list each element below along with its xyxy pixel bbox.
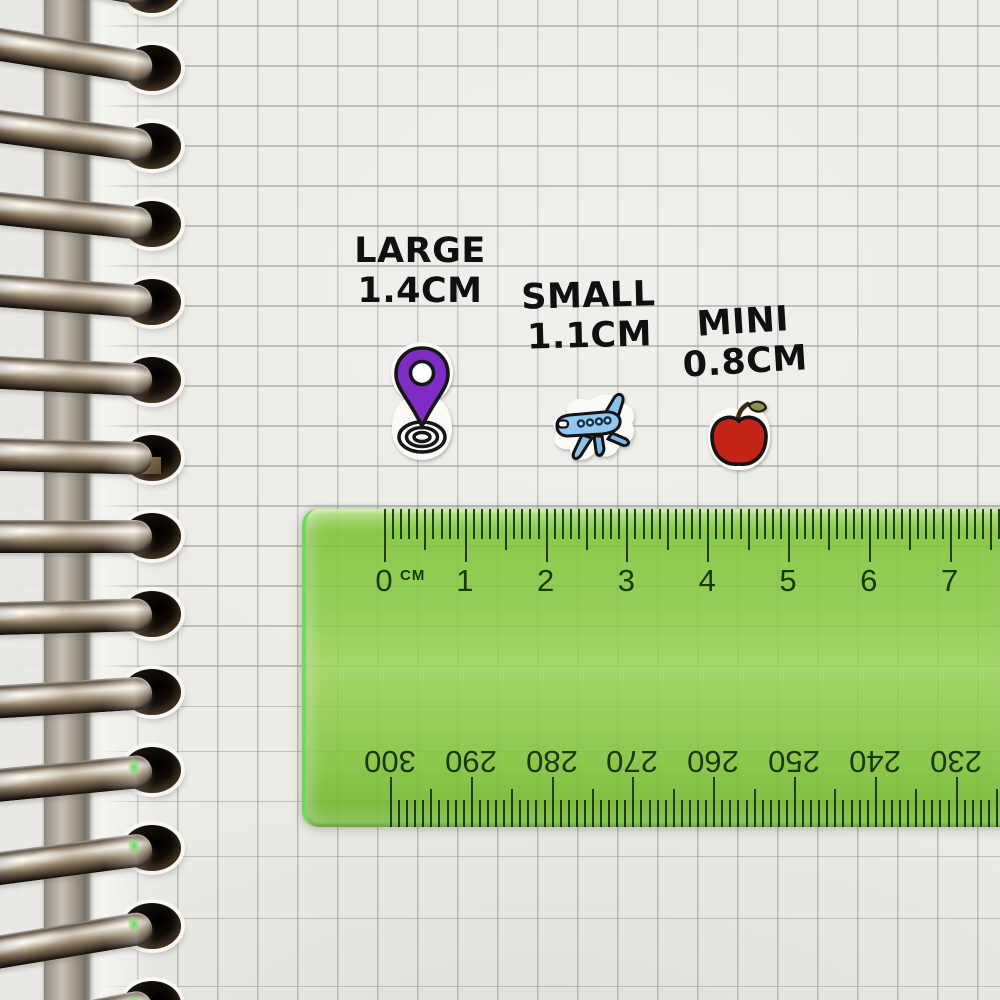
pin-center-dot <box>411 362 434 385</box>
ruler-tick <box>392 509 394 539</box>
ruler-tick <box>503 800 505 827</box>
ruler-tick <box>570 509 572 539</box>
ruler-tick <box>632 777 634 827</box>
ruler-tick <box>521 509 523 539</box>
ruler-tick <box>414 800 416 827</box>
ruler-cm-number: 0 <box>375 565 392 596</box>
ruler-tick <box>535 800 537 827</box>
ruler-tick <box>667 509 669 550</box>
green-reflection <box>127 916 140 933</box>
ruler-tick <box>675 509 677 539</box>
ruler-tick <box>544 800 546 827</box>
apple-sticker <box>705 396 773 474</box>
ruler-tick <box>408 509 410 539</box>
ruler-tick <box>729 800 731 827</box>
ruler-tick <box>457 509 459 539</box>
ruler-tick <box>592 789 594 827</box>
ruler-tick <box>948 800 950 827</box>
ruler-tick <box>511 789 513 827</box>
ruler-tick <box>578 509 580 539</box>
ruler-tick <box>828 509 830 550</box>
ruler-tick <box>683 509 685 539</box>
ruler-tick <box>513 509 515 539</box>
ruler-tick <box>505 509 507 550</box>
ruler-tick <box>942 509 944 539</box>
ruler-tick <box>424 509 426 550</box>
ruler-tick <box>586 509 588 550</box>
ruler-tick <box>527 800 529 827</box>
ruler-tick <box>519 800 521 827</box>
ruler-tick <box>616 800 618 827</box>
ruler-tick <box>673 789 675 827</box>
ruler-tick <box>859 800 861 827</box>
ruler-tick <box>845 509 847 539</box>
ruler-tick <box>390 777 392 827</box>
ruler-cm-number: 5 <box>779 565 796 596</box>
ruler-tick <box>907 800 909 827</box>
ruler-mm-number: 270 <box>607 746 659 777</box>
ruler-tick <box>465 509 467 562</box>
ruler-tick <box>875 777 877 827</box>
ruler-tick <box>869 509 871 562</box>
ruler-tick <box>398 800 400 827</box>
ruler-tick <box>562 509 564 539</box>
size-label-mini-title: MINI <box>696 299 790 345</box>
ruler-tick <box>449 509 451 539</box>
ruler-mm-number: 250 <box>768 746 820 777</box>
ruler-tick <box>851 800 853 827</box>
ruler-tick <box>438 800 440 827</box>
ruler-tick <box>643 509 645 539</box>
ruler-tick <box>737 800 739 827</box>
ruler-tick <box>416 509 418 539</box>
size-label-large-title: LARGE <box>354 231 485 271</box>
ruler-tick <box>899 800 901 827</box>
ruler-tick <box>893 509 895 539</box>
ruler-tick <box>489 509 491 539</box>
ruler-tick <box>931 800 933 827</box>
ruler-tick <box>812 509 814 539</box>
ruler-tick <box>441 509 443 539</box>
ruler-tick <box>691 509 693 539</box>
ruler-tick <box>473 509 475 539</box>
ruler-tick <box>786 800 788 827</box>
ruler-tick <box>788 509 790 562</box>
ruler-tick <box>964 800 966 827</box>
ruler-tick <box>624 800 626 827</box>
ruler-tick <box>546 509 548 562</box>
ruler-tick <box>996 789 998 827</box>
ruler-tick <box>923 800 925 827</box>
ruler-tick <box>915 789 917 827</box>
ruler-tick <box>455 800 457 827</box>
ruler-tick <box>982 509 984 539</box>
ruler-tick <box>778 800 780 827</box>
ruler-mm-number: 240 <box>849 746 901 777</box>
ruler-mm-number: 230 <box>930 746 982 777</box>
ruler-tick <box>463 800 465 827</box>
ruler-tick <box>705 800 707 827</box>
ruler-tick <box>479 800 481 827</box>
ruler-tick <box>877 509 879 539</box>
ruler-tick <box>836 509 838 539</box>
ruler-tick <box>713 777 715 827</box>
ruler-tick <box>406 800 408 827</box>
ruler-tick <box>529 509 531 539</box>
ruler-tick <box>764 509 766 539</box>
ruler-tick <box>853 509 855 539</box>
ruler-tick <box>748 509 750 550</box>
ruler-tick <box>721 800 723 827</box>
ruler-tick <box>602 509 604 539</box>
ruler-tick <box>917 509 919 539</box>
ruler-tick <box>699 509 701 539</box>
green-reflection <box>127 995 141 1000</box>
ruler-tick <box>610 509 612 539</box>
ruler-tick <box>584 800 586 827</box>
ruler-tick <box>966 509 968 539</box>
ruler-mm-number: 260 <box>687 746 739 777</box>
ruler-tick <box>657 800 659 827</box>
ruler-tick <box>780 509 782 539</box>
ruler-cm-number: 4 <box>699 565 716 596</box>
ruler-tick <box>447 800 449 827</box>
ruler-tick <box>707 509 709 562</box>
ruler-tick <box>772 509 774 539</box>
ruler-tick <box>867 800 869 827</box>
ruler-tick <box>796 509 798 539</box>
size-label-mini: MINI 0.8CM <box>632 295 856 388</box>
ruler-tick <box>554 509 556 539</box>
ruler-tick <box>608 800 610 827</box>
ruler-tick <box>634 509 636 539</box>
ruler-tick <box>665 800 667 827</box>
ruler-tick <box>651 509 653 539</box>
ruler-tick <box>754 789 756 827</box>
ruler-tick <box>538 509 540 539</box>
ruler-tick <box>560 800 562 827</box>
ruler-tick <box>885 509 887 539</box>
binder-ring <box>0 598 152 636</box>
green-reflection <box>128 759 140 775</box>
ruler-tick <box>770 800 772 827</box>
ruler-tick <box>471 777 473 827</box>
ruler-tick <box>432 509 434 539</box>
ruler-tick <box>826 800 828 827</box>
ruler-tick <box>972 800 974 827</box>
ruler-tick <box>697 800 699 827</box>
ruler-tick <box>497 509 499 539</box>
ruler-tick <box>802 800 804 827</box>
ruler-tick <box>939 800 941 827</box>
ruler-tick <box>400 509 402 539</box>
ruler-tick <box>820 509 822 539</box>
ruler-cm-number: 1 <box>456 565 473 596</box>
location-pin-sticker <box>385 340 459 464</box>
ruler-tick <box>834 789 836 827</box>
ruler-tick <box>901 509 903 539</box>
ruler-tick <box>626 509 628 562</box>
ruler-tick <box>594 509 596 539</box>
ruler-tick <box>731 509 733 539</box>
ruler-tick <box>600 800 602 827</box>
ruler-cm-number: 6 <box>860 565 877 596</box>
ruler-tick <box>810 800 812 827</box>
ruler-tick <box>794 777 796 827</box>
ruler-tick <box>974 509 976 539</box>
ruler-tick <box>756 509 758 539</box>
ruler-tick <box>422 800 424 827</box>
ruler-tick <box>495 800 497 827</box>
ruler-tick <box>689 800 691 827</box>
ruler-tick <box>618 509 620 539</box>
airplane-sticker <box>544 391 638 467</box>
ruler-tick <box>740 509 742 539</box>
ruler-tick <box>804 509 806 539</box>
ruler-unit-label: CM <box>400 567 425 584</box>
ruler-tick <box>925 509 927 539</box>
ruler-tick <box>958 509 960 539</box>
ruler-tick <box>487 800 489 827</box>
ruler-tick <box>723 509 725 539</box>
ruler-mm-number: 280 <box>526 746 578 777</box>
green-reflection <box>128 838 141 854</box>
ruler-tick <box>552 777 554 827</box>
ruler-tick <box>988 800 990 827</box>
ruler-tick <box>818 800 820 827</box>
ruler-tick <box>746 800 748 827</box>
green-ruler: 01234567 CM 300290280270260250240230 <box>302 509 1000 827</box>
ruler-tick <box>576 800 578 827</box>
ruler-tick <box>842 800 844 827</box>
ruler-tick <box>481 509 483 539</box>
ruler-tick <box>956 777 958 827</box>
ruler-tick <box>659 509 661 539</box>
ruler-tick <box>715 509 717 539</box>
ruler-tick <box>649 800 651 827</box>
ruler-tick <box>384 509 386 562</box>
ruler-tick <box>681 800 683 827</box>
binder-ring <box>0 520 152 553</box>
ruler-cm-number: 7 <box>941 565 958 596</box>
ruler-tick <box>933 509 935 539</box>
ruler-cm-number: 2 <box>537 565 554 596</box>
ruler-tick <box>568 800 570 827</box>
ruler-tick <box>980 800 982 827</box>
ruler-mm-number: 290 <box>445 746 497 777</box>
ruler-tick <box>891 800 893 827</box>
binder-ring <box>0 437 152 475</box>
ruler-tick <box>430 789 432 827</box>
ruler-tick <box>990 509 992 550</box>
notebook-photo: LARGE 1.4CM SMALL 1.1CM MINI 0.8CM <box>0 0 1000 1000</box>
ruler-tick <box>883 800 885 827</box>
ruler-tick <box>909 509 911 550</box>
ruler-tick <box>950 509 952 562</box>
ruler-cm-number: 3 <box>618 565 635 596</box>
ruler-tick <box>861 509 863 539</box>
ruler-tick <box>762 800 764 827</box>
ruler-tick <box>640 800 642 827</box>
apple-icon <box>712 402 766 465</box>
ruler-mm-number: 300 <box>364 746 416 777</box>
